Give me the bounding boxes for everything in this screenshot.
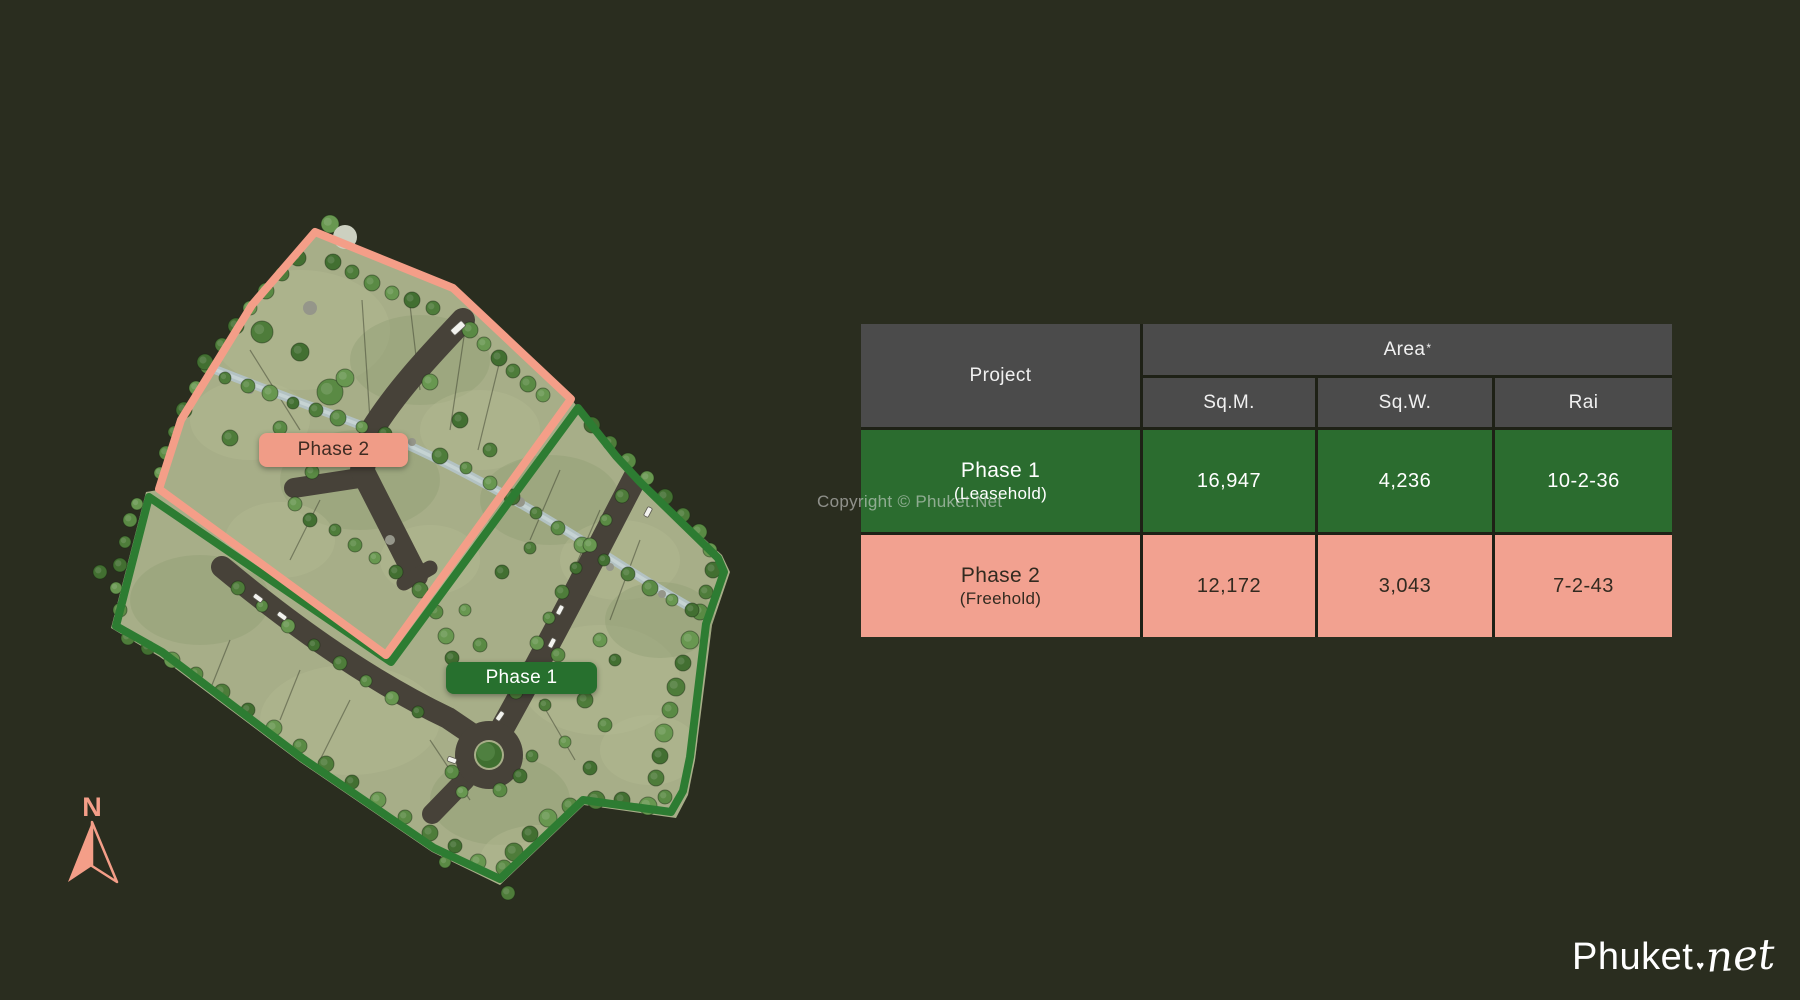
phuket-net-logo: Phuket ♥ net bbox=[1572, 934, 1775, 979]
table-header-sqw: Sq.W. bbox=[1318, 378, 1492, 427]
logo-tld-text: net bbox=[1705, 932, 1776, 980]
map-phase1-label: Phase 1 bbox=[446, 662, 597, 694]
area-label: Area bbox=[1384, 339, 1426, 361]
copyright-watermark: Copyright © Phuket.Net bbox=[817, 492, 1002, 512]
table-header-rai: Rai bbox=[1495, 378, 1672, 427]
phase1-rai-value: 10-2-36 bbox=[1495, 430, 1672, 532]
phase2-rai-value: 7-2-43 bbox=[1495, 535, 1672, 637]
phase1-name: Phase 1 bbox=[961, 459, 1040, 483]
compass-n-label: N bbox=[82, 792, 102, 822]
phase2-sqw-value: 3,043 bbox=[1318, 535, 1492, 637]
site-plan-page: { "map": { "phase2_label": "Phase 2", "p… bbox=[0, 0, 1800, 1000]
phase2-tenure: (Freehold) bbox=[960, 588, 1041, 609]
site-map: N bbox=[50, 195, 750, 905]
table-header-area: Area* bbox=[1143, 324, 1672, 375]
map-phase2-label: Phase 2 bbox=[259, 433, 408, 467]
table-header-project: Project bbox=[861, 324, 1140, 427]
table-row-phase1-project: Phase 1 (Leasehold) bbox=[861, 430, 1140, 532]
table-header-sqm: Sq.M. bbox=[1143, 378, 1315, 427]
logo-brand-text: Phuket bbox=[1572, 935, 1693, 979]
phase1-sqm-value: 16,947 bbox=[1143, 430, 1315, 532]
phase2-name: Phase 2 bbox=[961, 564, 1040, 588]
area-asterisk: * bbox=[1426, 341, 1431, 355]
table-row-phase2-project: Phase 2 (Freehold) bbox=[861, 535, 1140, 637]
area-table: Project Area* Sq.M. Sq.W. Rai Phase 1 (L… bbox=[861, 324, 1672, 637]
phase1-sqw-value: 4,236 bbox=[1318, 430, 1492, 532]
phase2-sqm-value: 12,172 bbox=[1143, 535, 1315, 637]
compass-needle-filled bbox=[68, 822, 92, 882]
heart-dot-icon: ♥ bbox=[1696, 959, 1704, 972]
roundabout bbox=[455, 721, 523, 789]
north-compass: N bbox=[68, 792, 117, 882]
compass-needle-outline bbox=[92, 822, 117, 882]
